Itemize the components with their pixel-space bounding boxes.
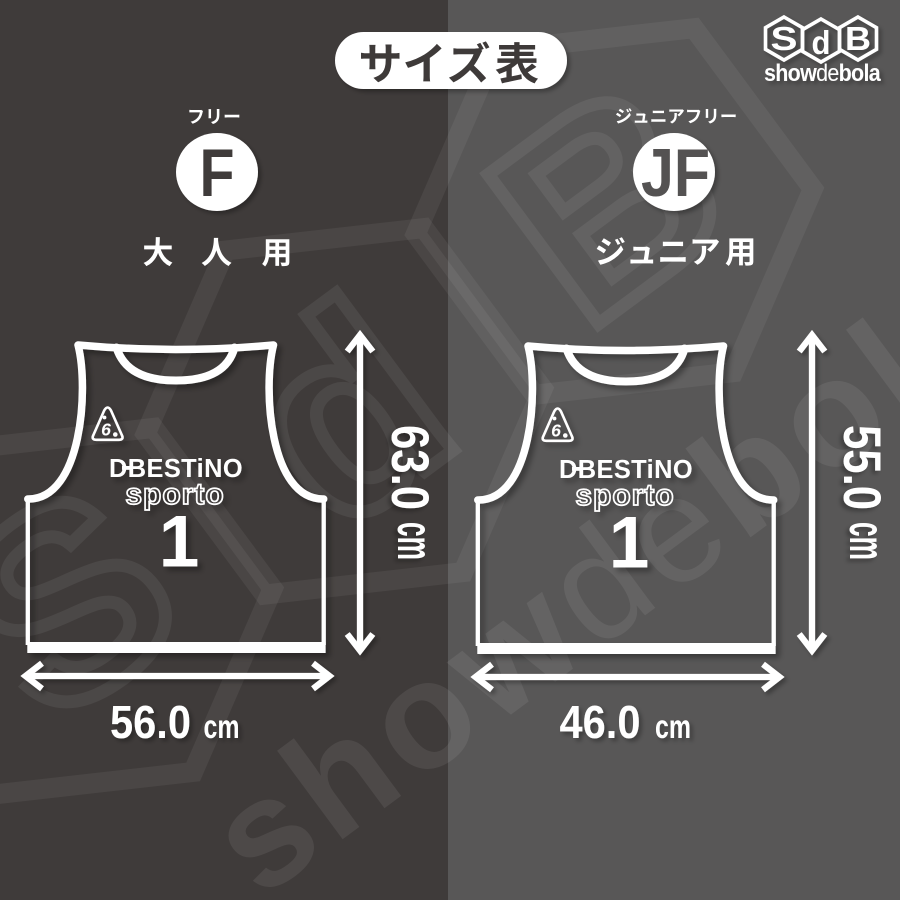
svg-text:S: S	[771, 20, 798, 57]
svg-text:showdebola: showdebola	[764, 60, 881, 87]
svg-text:cm: cm	[655, 708, 691, 745]
svg-text:JF: JF	[641, 135, 710, 211]
svg-text:F: F	[200, 135, 235, 211]
svg-text:cm: cm	[204, 708, 240, 745]
svg-text:cm: cm	[387, 522, 443, 560]
svg-text:55.0: 55.0	[832, 425, 891, 510]
svg-text:63.0: 63.0	[380, 425, 439, 510]
svg-text:cm: cm	[839, 522, 895, 560]
svg-text:d: d	[812, 24, 831, 61]
svg-text:56.0: 56.0	[110, 696, 191, 748]
svg-text:B: B	[845, 20, 871, 57]
svg-text:46.0: 46.0	[560, 696, 641, 748]
